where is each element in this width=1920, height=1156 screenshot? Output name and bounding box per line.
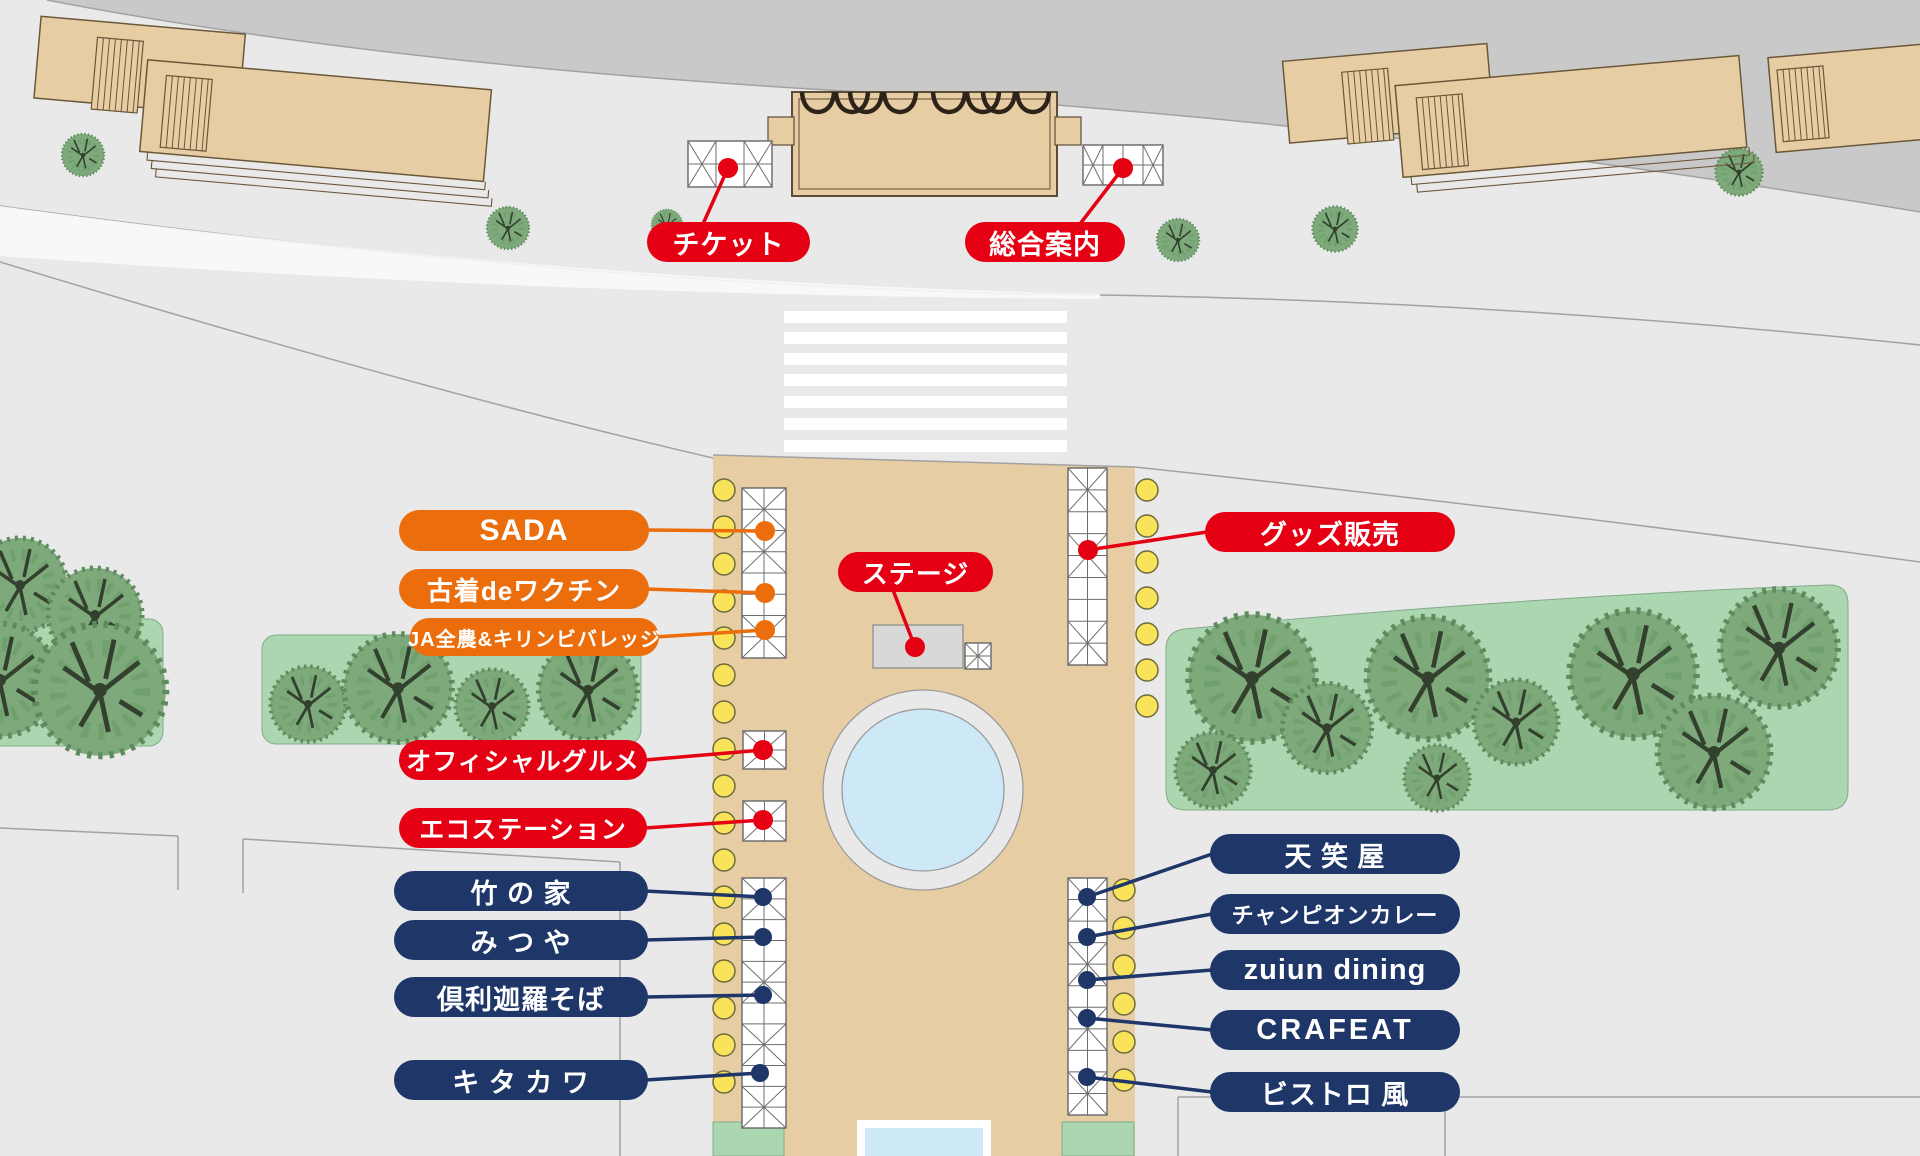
- booth-marker-dot: [755, 521, 775, 541]
- label-ja: JA全農&キリンビバレッジ: [410, 618, 659, 656]
- booth-marker-dot: [754, 986, 772, 1004]
- tree-icon: [1157, 219, 1199, 261]
- south-pool: [857, 1120, 991, 1156]
- label-mitsuya: み つ や: [394, 920, 648, 960]
- label-ticket: チケット: [647, 222, 810, 262]
- booth-marker-dot: [753, 740, 773, 760]
- yellow-marker-dot: [1136, 659, 1158, 681]
- booth-marker-dot: [1078, 1009, 1096, 1027]
- label-gourmet: オフィシャルグルメ: [399, 740, 647, 780]
- yellow-marker-dot: [713, 849, 735, 871]
- label-champion: チャンピオンカレー: [1210, 894, 1460, 934]
- yellow-marker-dot: [713, 738, 735, 760]
- tree-icon: [62, 134, 104, 176]
- yellow-marker-dot: [1136, 551, 1158, 573]
- label-crafeat: CRAFEAT: [1210, 1010, 1460, 1050]
- yellow-marker-dot: [1136, 479, 1158, 501]
- label-tenshoya: 天 笑 屋: [1210, 834, 1460, 874]
- yellow-marker-dot: [713, 516, 735, 538]
- fountain: [823, 690, 1023, 890]
- building-east-corner: [1768, 42, 1920, 152]
- tree-icon: [1367, 617, 1489, 739]
- tree-icon: [1658, 696, 1771, 809]
- label-kurikara: 倶利迦羅そば: [394, 977, 648, 1017]
- label-connector-line: [645, 530, 765, 531]
- label-takenoya: 竹 の 家: [394, 871, 648, 911]
- yellow-marker-dot: [1113, 993, 1135, 1015]
- yellow-marker-dot: [1113, 955, 1135, 977]
- booth-marker-dot: [754, 928, 772, 946]
- yellow-marker-dot: [1136, 623, 1158, 645]
- yellow-marker-dot: [1113, 1031, 1135, 1053]
- tree-icon: [1175, 732, 1250, 807]
- yellow-marker-dot: [713, 479, 735, 501]
- yellow-marker-dot: [713, 701, 735, 723]
- label-furugi: 古着deワクチン: [399, 569, 649, 609]
- yellow-marker-dot: [713, 627, 735, 649]
- yellow-marker-dot: [1136, 695, 1158, 717]
- yellow-marker-dot: [1136, 515, 1158, 537]
- tree-icon: [455, 669, 528, 742]
- tent-block: [965, 643, 991, 669]
- label-kitakawa: キ タ カ ワ: [394, 1060, 648, 1100]
- planter-south-2: [1062, 1122, 1134, 1156]
- label-bistro: ビストロ 風: [1210, 1072, 1460, 1112]
- tree-icon: [1282, 683, 1371, 772]
- tree-icon: [34, 624, 166, 756]
- label-goods: グッズ販売: [1205, 512, 1455, 552]
- booth-marker-dot: [1113, 158, 1133, 178]
- tree-icon: [1404, 745, 1470, 811]
- yellow-marker-dot: [713, 553, 735, 575]
- yellow-marker-dot: [713, 923, 735, 945]
- label-info: 総合案内: [965, 222, 1125, 262]
- label-stage: ステージ: [838, 552, 993, 592]
- yellow-marker-dot: [1136, 587, 1158, 609]
- booth-marker-dot: [718, 158, 738, 178]
- booth-marker-dot: [1078, 1068, 1096, 1086]
- booth-marker-dot: [754, 888, 772, 906]
- tree-icon: [1720, 589, 1838, 707]
- booth-marker-dot: [753, 810, 773, 830]
- booth-marker-dot: [1078, 888, 1096, 906]
- booth-marker-dot: [755, 620, 775, 640]
- tree-icon: [1312, 206, 1357, 251]
- booth-marker-dot: [1078, 928, 1096, 946]
- booth-marker-dot: [1078, 540, 1098, 560]
- booth-marker-dot: [1078, 971, 1096, 989]
- tent-block: [1068, 468, 1107, 665]
- booth-marker-dot: [751, 1064, 769, 1082]
- tree-icon: [487, 207, 529, 249]
- yellow-marker-dot: [713, 1034, 735, 1056]
- yellow-marker-dot: [713, 960, 735, 982]
- yellow-marker-dot: [713, 664, 735, 686]
- label-eco: エコステーション: [399, 808, 647, 848]
- label-zuiun: zuiun dining: [1210, 950, 1460, 990]
- booth-marker-dot: [755, 583, 775, 603]
- yellow-marker-dot: [713, 775, 735, 797]
- booth-marker-dot: [905, 637, 925, 657]
- tree-icon: [1474, 680, 1559, 765]
- gate-wing-east: [1055, 117, 1081, 145]
- tree-icon: [270, 666, 345, 741]
- gate-building: [768, 92, 1081, 196]
- yellow-marker-dot: [713, 997, 735, 1019]
- label-connector-line: [645, 995, 763, 997]
- label-sada: SADA: [399, 510, 649, 551]
- event-venue-map: チケット 総合案内 SADA 古着deワクチン JA全農&キリンビバレッジ ステ…: [0, 0, 1920, 1156]
